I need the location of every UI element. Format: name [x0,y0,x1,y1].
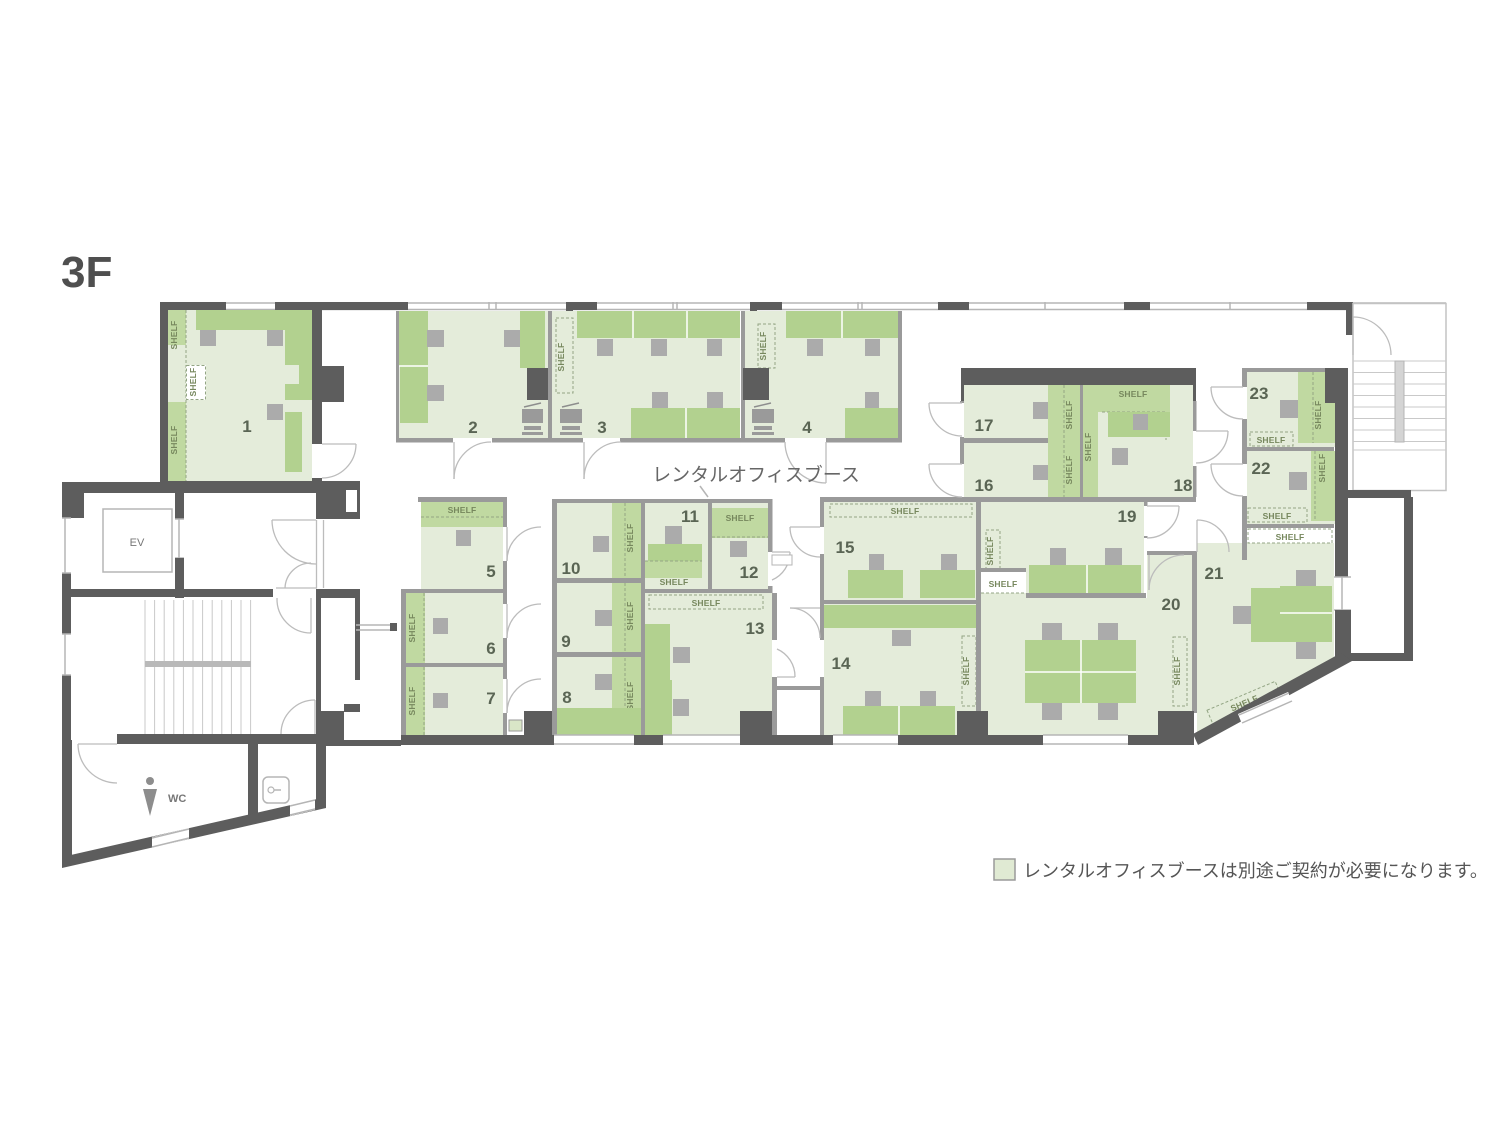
svg-text:SHELF: SHELF [1313,401,1323,430]
svg-text:4: 4 [802,418,812,437]
svg-text:SHELF: SHELF [985,537,995,566]
svg-text:SHELF: SHELF [1317,454,1327,483]
svg-text:SHELF: SHELF [1064,401,1074,430]
svg-text:SHELF: SHELF [448,505,477,515]
svg-text:EV: EV [130,537,145,549]
svg-text:SHELF: SHELF [169,426,179,455]
svg-text:SHELF: SHELF [407,614,417,643]
svg-text:SHELF: SHELF [1083,433,1093,462]
svg-text:SHELF: SHELF [556,343,566,372]
svg-text:SHELF: SHELF [625,682,635,711]
svg-text:15: 15 [836,538,855,557]
svg-text:SHELF: SHELF [692,598,721,608]
svg-text:WC: WC [168,793,186,805]
svg-text:20: 20 [1162,595,1181,614]
svg-text:SHELF: SHELF [660,577,689,587]
svg-text:SHELF: SHELF [625,602,635,631]
svg-text:レンタルオフィスブース: レンタルオフィスブース [652,463,860,486]
svg-text:14: 14 [832,654,851,673]
svg-text:SHELF: SHELF [407,687,417,716]
svg-text:SHELF: SHELF [169,321,179,350]
svg-text:SHELF: SHELF [758,332,768,361]
svg-text:3: 3 [597,418,606,437]
svg-text:19: 19 [1118,507,1137,526]
svg-text:SHELF: SHELF [1276,532,1305,542]
svg-text:13: 13 [746,619,765,638]
svg-text:3F: 3F [61,248,112,297]
svg-text:16: 16 [975,476,994,495]
svg-text:SHELF: SHELF [1263,511,1292,521]
svg-text:10: 10 [562,559,581,578]
svg-text:SHELF: SHELF [989,579,1018,589]
svg-text:18: 18 [1174,476,1193,495]
svg-text:8: 8 [562,688,571,707]
svg-text:22: 22 [1252,459,1271,478]
svg-text:SHELF: SHELF [726,513,755,523]
svg-text:レンタルオフィスブースは別途ご契約が必要になります。: レンタルオフィスブースは別途ご契約が必要になります。 [1023,860,1488,881]
svg-text:6: 6 [486,639,495,658]
svg-text:SHELF: SHELF [1064,456,1074,485]
svg-text:SHELF: SHELF [1172,657,1182,686]
svg-text:SHELF: SHELF [961,657,971,686]
svg-text:23: 23 [1250,384,1269,403]
svg-text:9: 9 [561,632,570,651]
svg-text:SHELF: SHELF [188,368,198,397]
svg-text:SHELF: SHELF [1119,389,1148,399]
svg-text:11: 11 [681,507,699,526]
svg-text:12: 12 [740,563,759,582]
svg-text:2: 2 [468,418,477,437]
svg-text:17: 17 [975,416,994,435]
svg-text:5: 5 [486,562,495,581]
svg-text:SHELF: SHELF [891,506,920,516]
svg-text:SHELF: SHELF [1257,435,1286,445]
svg-text:1: 1 [242,417,251,436]
svg-text:7: 7 [486,689,495,708]
svg-text:SHELF: SHELF [625,524,635,553]
svg-text:21: 21 [1205,564,1224,583]
